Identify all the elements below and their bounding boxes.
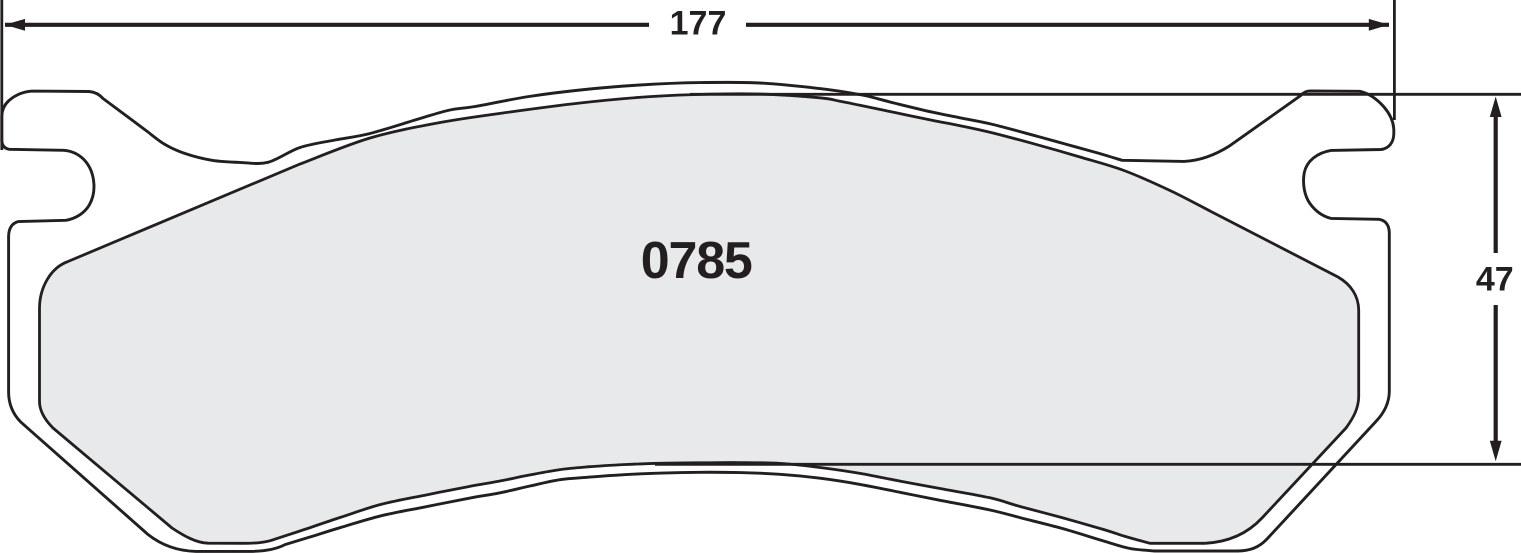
svg-text:47: 47 — [1476, 261, 1514, 299]
svg-text:177: 177 — [670, 5, 727, 43]
svg-text:0785: 0785 — [641, 232, 752, 290]
